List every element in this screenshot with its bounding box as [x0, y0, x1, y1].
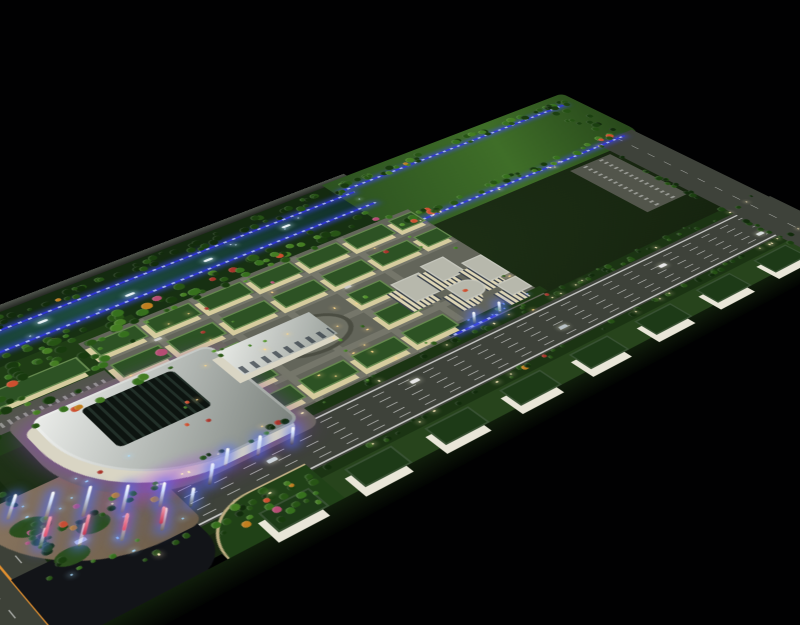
led-light-pole — [472, 312, 476, 324]
model-photo — [0, 0, 800, 625]
architectural-model-board — [0, 98, 800, 625]
led-light-pole — [497, 302, 501, 314]
